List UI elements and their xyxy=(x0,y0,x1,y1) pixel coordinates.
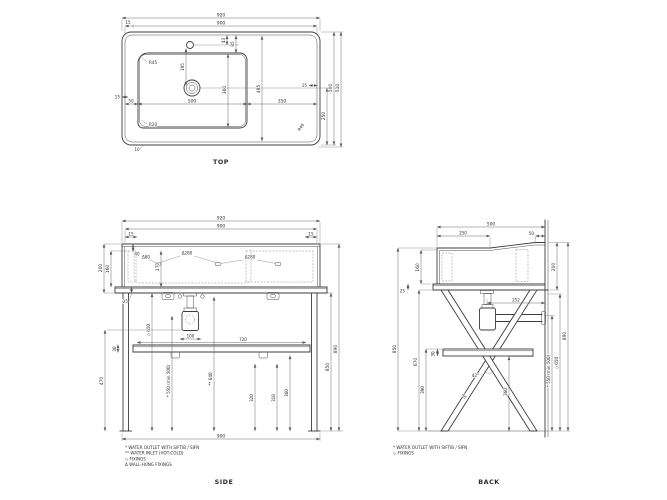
side-legend-inlet: ** WATER INLET (HOT-COLD) xyxy=(125,451,184,456)
top-dim-bottom-lip: 10 xyxy=(134,147,140,152)
side-dim-legs-height: 850 xyxy=(325,363,331,372)
side-dim-rim-height: 40 xyxy=(134,252,140,257)
side-view-dimensions xyxy=(104,221,343,441)
top-dim-overall-width: 920 xyxy=(217,13,226,19)
top-view-label: TOP xyxy=(213,158,229,166)
top-dim-usable-width: 900 xyxy=(217,21,226,27)
back-dim-basin-height: 200 xyxy=(551,263,557,272)
siphon-trap xyxy=(480,308,496,330)
top-dim-depth: 500 xyxy=(328,84,334,93)
top-dim-left-gap: 15 xyxy=(115,95,121,100)
back-view-linework xyxy=(428,220,548,437)
side-dim-shelf-length: 720 xyxy=(239,337,247,342)
side-dim-basin-inner-height: 160 xyxy=(105,265,111,274)
top-dim-right-gap: 15 xyxy=(302,83,308,88)
side-fixing-a: Δ80 xyxy=(142,255,150,260)
back-dim-shelf-thickness: 30 xyxy=(431,351,436,357)
wall-fixing-slot xyxy=(275,263,281,266)
top-dim-bowl-radius-bottom: R20 xyxy=(149,122,157,127)
side-view-linework xyxy=(115,244,327,431)
side-dim-usable-width: 900 xyxy=(217,223,226,229)
top-dim-overall-depth: 510 xyxy=(335,84,341,93)
top-dim-left-margin: 50 xyxy=(128,98,134,103)
side-dim-trap-offset: 100 xyxy=(187,333,195,338)
side-dim-basin-height: 200 xyxy=(98,264,104,273)
top-dim-bowl-radius-top: R45 xyxy=(149,60,157,65)
technical-drawing-page: 920 900 15 43 85 R45 195 360 485 50 500 … xyxy=(0,0,667,500)
side-dim-drain-inset: 170 xyxy=(155,263,161,272)
deck-bracket xyxy=(267,293,279,300)
shelf-clamp xyxy=(259,352,268,358)
top-view: 920 900 15 43 85 R45 195 360 485 50 500 … xyxy=(115,13,343,167)
side-legend-outlet: * WATER OUTLET WITH SIFTIB / SIFN xyxy=(125,445,199,450)
back-dim-basin-inner-height: 160 xyxy=(415,263,421,272)
side-dim-pipe-height-a: 320 xyxy=(249,394,254,402)
side-dim-gap-left: 15 xyxy=(128,231,134,236)
back-dim-under-deck-height: 670 xyxy=(413,358,419,367)
side-dim-total-height: 890 xyxy=(333,345,339,354)
back-view-label: BACK xyxy=(478,478,500,486)
back-legend-outlet: * WATER OUTLET WITH SIFTIB / SIFN xyxy=(393,445,467,450)
side-dim-pipe-height-c: 360 xyxy=(284,389,289,397)
back-dim-deck-thickness: 25 xyxy=(400,289,406,294)
back-view: 500 250 50 160 25 200 252 * 550 (min 500… xyxy=(392,220,570,486)
side-view-label: SIDE xyxy=(215,478,234,486)
top-dim-right-deck: 350 xyxy=(278,98,287,104)
back-dim-front-height: 850 xyxy=(392,345,398,354)
back-view-dimensions xyxy=(398,227,570,431)
back-dim-shelf-top-height: 390 xyxy=(420,386,425,394)
back-dim-leg-angle: 42° xyxy=(472,373,479,378)
back-dim-pipe-to-wall: 252 xyxy=(512,297,520,302)
back-dim-outlet-height: * 550 (min 500) xyxy=(546,354,551,387)
side-dim-inlet-height: ** 640 xyxy=(208,372,213,386)
side-legend-fixings: ◇ FIXINGS xyxy=(125,456,146,461)
top-dim-tap-offset-a: 43 xyxy=(221,38,226,44)
back-dim-total-height: 890 xyxy=(562,332,568,341)
top-dim-corner-radius: R46 xyxy=(296,122,305,132)
side-dim-fixings-height: ◇ 650 xyxy=(146,323,151,336)
deck-bracket xyxy=(162,293,174,300)
inlet-bolt xyxy=(178,295,182,299)
side-dim-shelf-thickness: 30 xyxy=(112,346,117,352)
side-view: 920 900 15 15 200 160 40 170 Δ80 Δ280 Δ2… xyxy=(98,215,343,486)
top-dim-tap-to-drain: 195 xyxy=(180,63,185,71)
top-dim-drain-from-front: 250 xyxy=(321,112,327,121)
side-dim-outlet-height: * 550 (min 500) xyxy=(166,364,171,397)
side-dim-overall-width: 920 xyxy=(217,215,226,221)
wall-fixing-slot xyxy=(215,263,221,266)
top-view-linework xyxy=(122,32,320,145)
side-dim-deck-thickness: 25 xyxy=(123,299,129,304)
shelf xyxy=(443,349,533,356)
top-dim-tap-offset-b: 85 xyxy=(230,41,235,47)
back-dim-front-flat: 250 xyxy=(459,230,467,235)
top-dim-bowl-width: 500 xyxy=(188,98,197,104)
top-dim-top-gap: 15 xyxy=(125,20,131,25)
side-dim-floor-width: 900 xyxy=(217,433,226,439)
top-view-dimensions xyxy=(122,18,343,149)
back-dim-depth: 500 xyxy=(487,221,496,227)
back-dim-shelf-bottom-height: 360 xyxy=(503,388,508,396)
top-dim-bowl-depth: 360 xyxy=(222,86,228,95)
side-dim-gap-right: 15 xyxy=(308,231,314,236)
side-dim-trap-height: 470 xyxy=(99,377,105,386)
top-dim-deck-inner-depth: 485 xyxy=(256,85,262,94)
side-dim-pipe-height-b: 318 xyxy=(271,394,276,402)
back-dim-fixings-height: ◇ 650 xyxy=(554,356,559,369)
side-fixing-b: Δ280 xyxy=(182,251,193,256)
shelf-clamp xyxy=(171,352,180,358)
side-legend-wall-fixings: Δ WALL-HUNG FIXINGS xyxy=(125,462,172,467)
back-legend-fixings: ◇ FIXINGS xyxy=(393,451,414,456)
siphon-trap xyxy=(182,312,199,331)
side-fixing-c: Δ280 xyxy=(245,255,256,260)
inlet-bolt xyxy=(201,295,205,299)
drawing-canvas: 920 900 15 43 85 R45 195 360 485 50 500 … xyxy=(0,0,667,500)
back-dim-back-lip: 50 xyxy=(529,231,535,236)
tap-hole xyxy=(187,42,194,49)
